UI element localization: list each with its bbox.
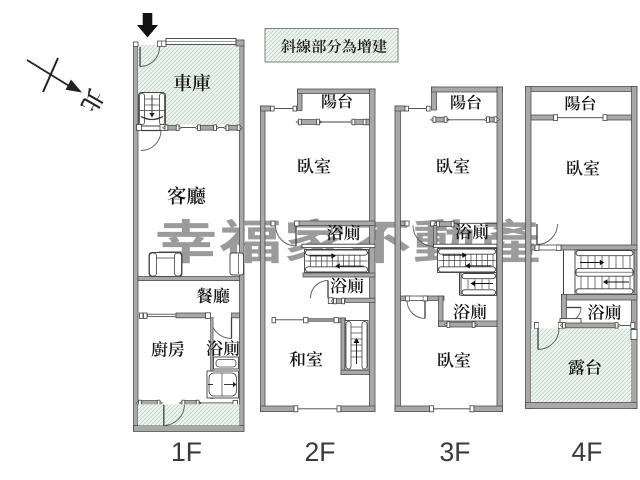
svg-text:1F: 1F [171,437,202,467]
svg-text:4F: 4F [572,437,603,467]
svg-text:2F: 2F [305,437,336,467]
svg-text:3F: 3F [440,437,471,467]
